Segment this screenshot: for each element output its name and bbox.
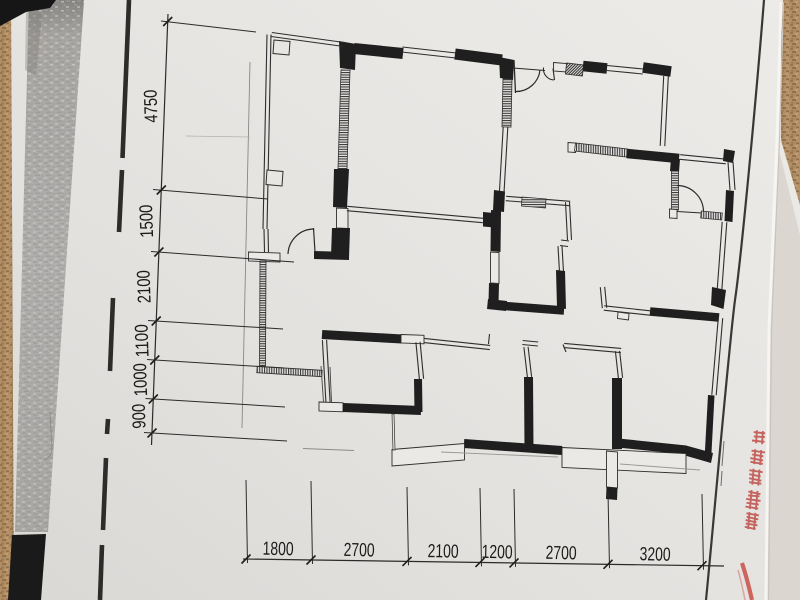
svg-text:2700: 2700 [343, 540, 374, 562]
svg-text:900: 900 [128, 403, 150, 429]
svg-text:1100: 1100 [130, 324, 152, 358]
svg-text:1500: 1500 [135, 204, 157, 238]
svg-text:2100: 2100 [133, 270, 155, 304]
svg-text:4750: 4750 [139, 89, 161, 123]
svg-text:1800: 1800 [262, 539, 293, 561]
svg-text:1000: 1000 [129, 363, 151, 397]
svg-text:2100: 2100 [427, 541, 458, 563]
svg-text:1200: 1200 [481, 542, 512, 564]
svg-text:2700: 2700 [545, 543, 576, 565]
svg-text:3200: 3200 [639, 544, 670, 566]
